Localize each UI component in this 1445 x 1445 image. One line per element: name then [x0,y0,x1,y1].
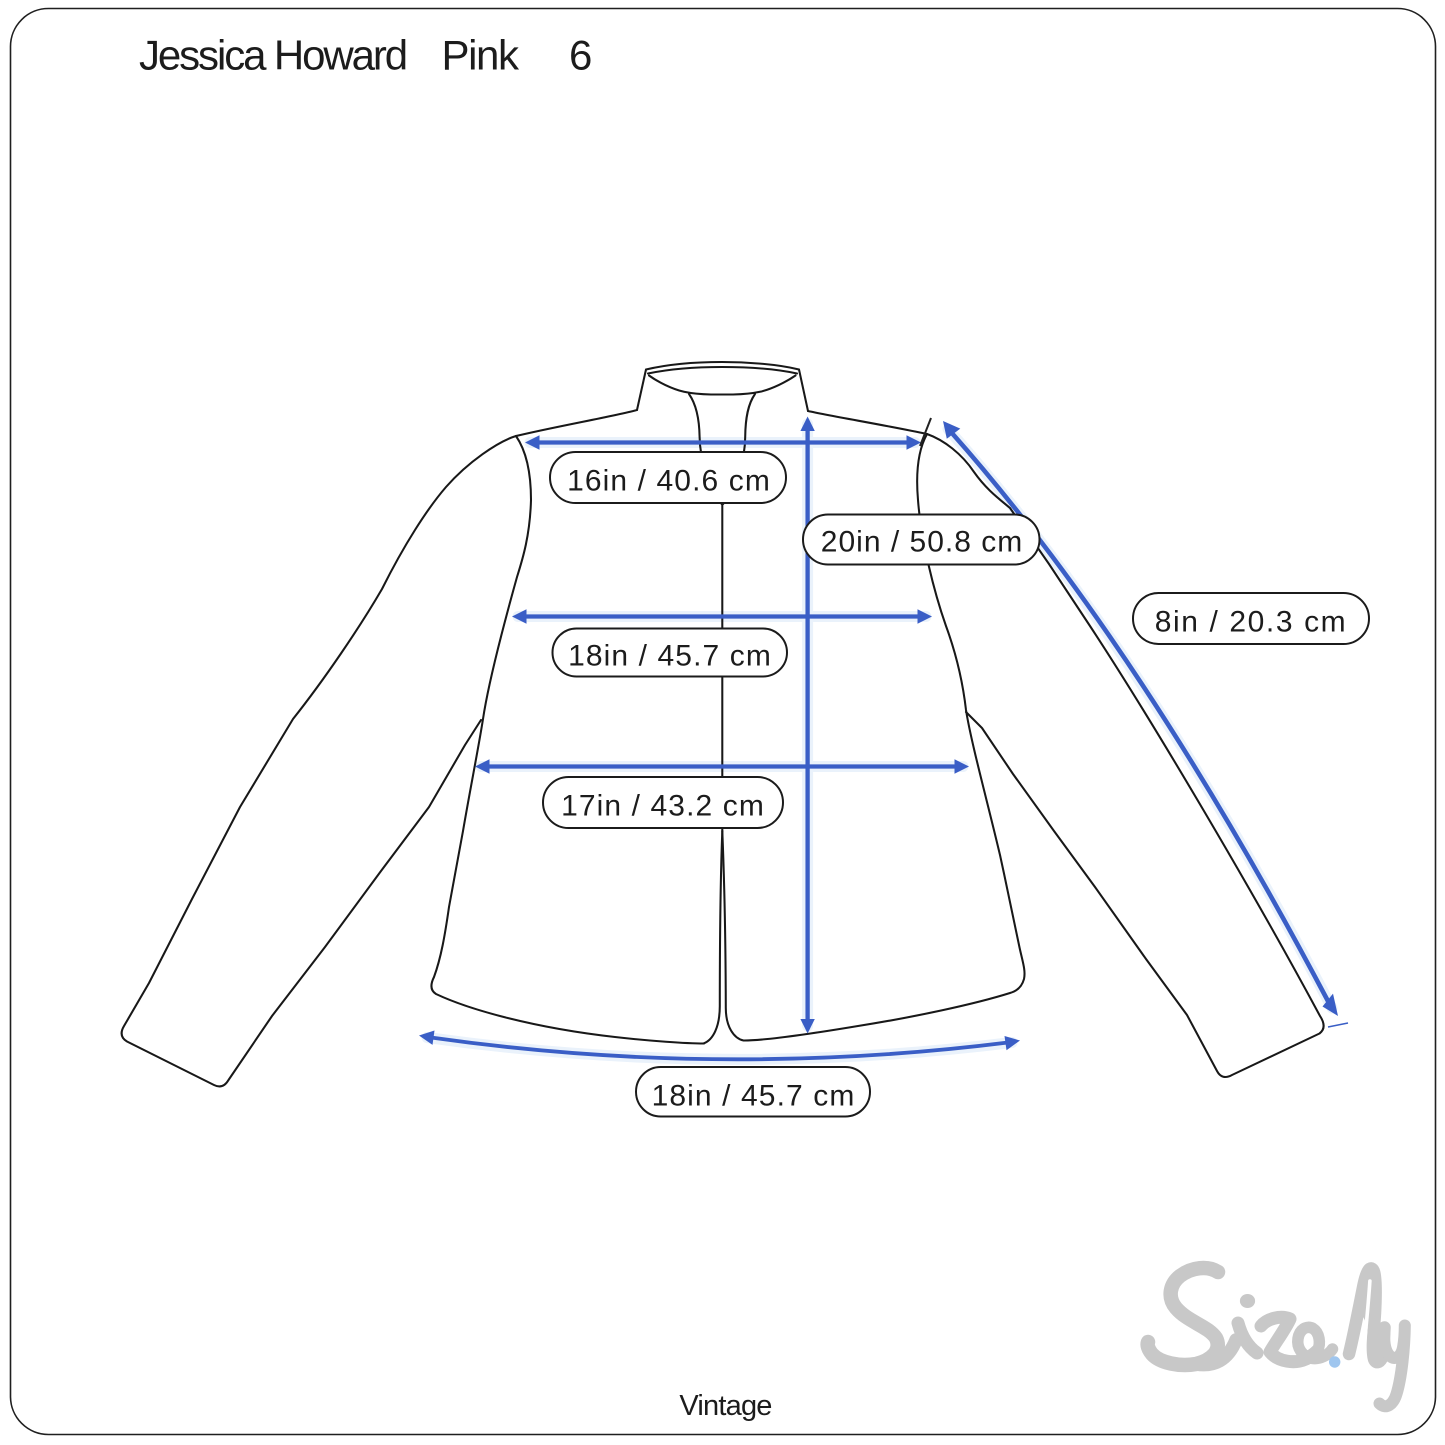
svg-text:Vintage: Vintage [679,1390,771,1422]
svg-text:18in / 45.7 cm: 18in / 45.7 cm [652,1080,856,1113]
svg-text:6: 6 [569,32,592,79]
svg-text:20in / 50.8 cm: 20in / 50.8 cm [821,526,1023,559]
svg-text:16in / 40.6 cm: 16in / 40.6 cm [567,465,771,498]
svg-text:17in / 43.2 cm: 17in / 43.2 cm [561,790,765,823]
svg-text:18in / 45.7 cm: 18in / 45.7 cm [568,640,772,673]
svg-text:Pink: Pink [442,32,521,79]
svg-text:Jessica Howard: Jessica Howard [139,32,406,79]
svg-text:8in / 20.3 cm: 8in / 20.3 cm [1155,606,1348,639]
